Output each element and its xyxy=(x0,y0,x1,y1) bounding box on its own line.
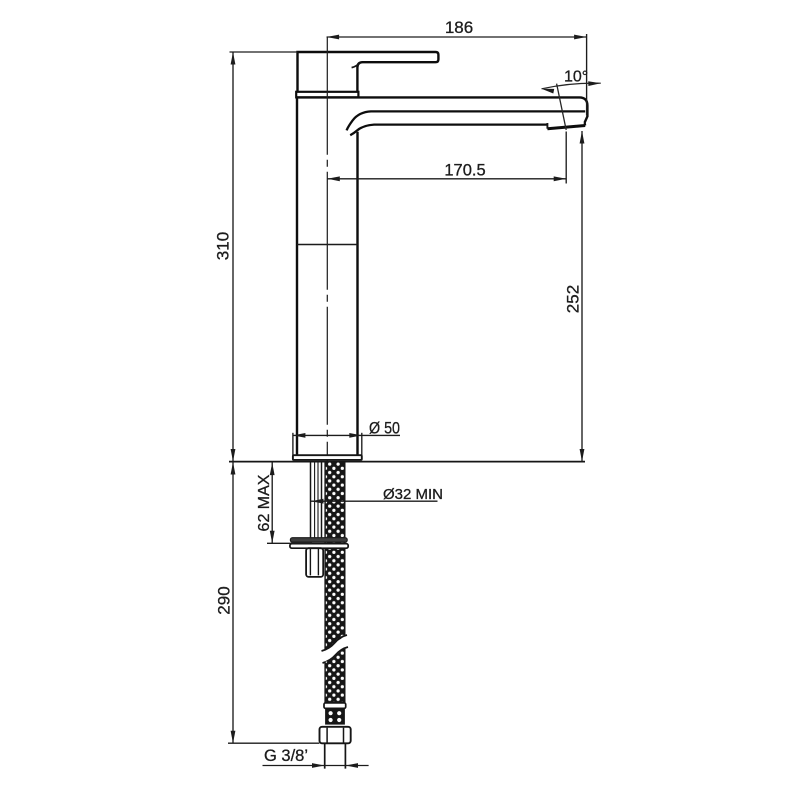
svg-text:10°: 10° xyxy=(564,69,588,86)
svg-text:Ø32 MIN: Ø32 MIN xyxy=(383,486,443,503)
svg-text:G 3/8’: G 3/8’ xyxy=(264,747,308,765)
svg-text:290: 290 xyxy=(215,586,234,614)
svg-text:62 MAX: 62 MAX xyxy=(256,474,273,531)
svg-text:170.5: 170.5 xyxy=(444,162,485,180)
svg-text:Ø 50: Ø 50 xyxy=(369,420,400,438)
svg-text:252: 252 xyxy=(564,285,583,313)
svg-text:186: 186 xyxy=(445,18,473,37)
svg-text:310: 310 xyxy=(214,232,233,260)
